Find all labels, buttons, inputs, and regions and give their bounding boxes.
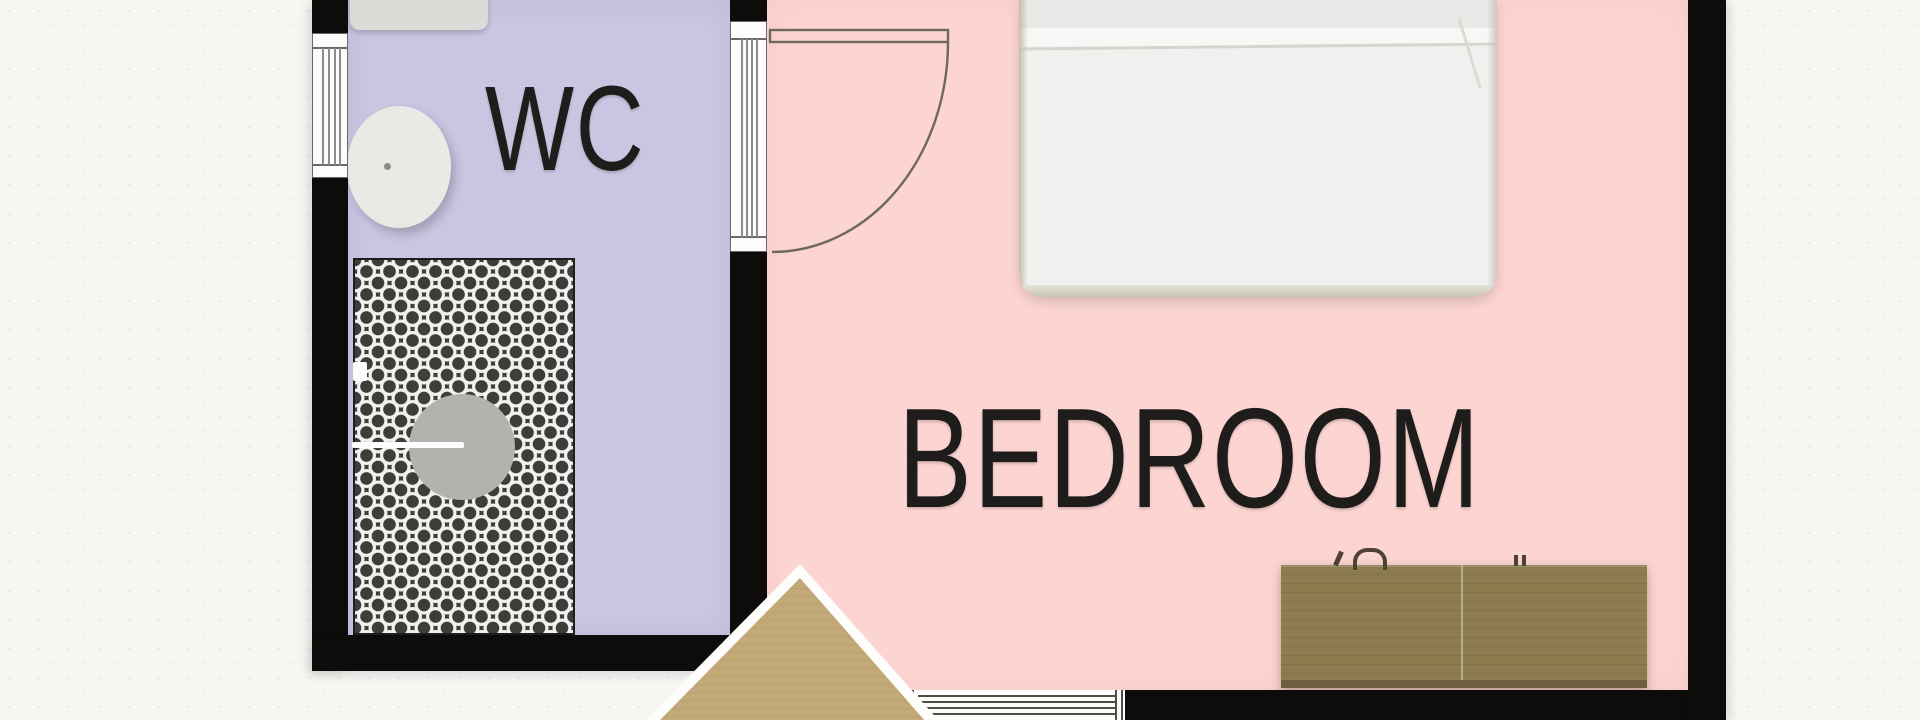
floor-plan-canvas: WC BEDROOM [0, 0, 1920, 720]
window-glazing-line [339, 48, 341, 165]
window-jamb [313, 47, 347, 49]
window-glazing-line [918, 701, 1116, 703]
window-glazing-line [918, 713, 1116, 715]
window-jamb [1121, 690, 1123, 720]
window-jamb [313, 164, 347, 166]
window-jamb [731, 236, 766, 238]
bed [1019, 0, 1497, 297]
dresser-handle [1514, 555, 1518, 566]
sink-drain-dot [384, 163, 391, 170]
stair-corner [640, 556, 944, 720]
shower-arm-line [352, 442, 464, 448]
window-glazing-line [918, 695, 1116, 697]
window-wc-bedroom [730, 21, 767, 252]
room-label-wc: WC [485, 68, 645, 189]
wall-bedroom-bottom [1125, 690, 1726, 720]
sink-basin [347, 106, 451, 228]
dresser [1281, 565, 1647, 688]
window-glazing-line [334, 48, 336, 165]
window-glazing-line [328, 48, 330, 165]
bed-duvet-edge [1019, 0, 1497, 28]
room-label-bedroom: BEDROOM [898, 388, 1481, 530]
window-glazing-line [751, 39, 753, 237]
shower-head [353, 362, 367, 381]
dresser-decor-ring [1353, 548, 1387, 570]
bed-right-shadow [1487, 0, 1497, 297]
bed-foot-shadow [1019, 285, 1497, 297]
window-glazing-line [756, 39, 758, 237]
window-wc-left [312, 33, 348, 178]
dresser-handle [1522, 555, 1526, 566]
window-glazing-line [741, 39, 743, 237]
wall-right-exterior [1688, 0, 1726, 720]
window-glazing-line [746, 39, 748, 237]
dresser-base [1281, 680, 1647, 688]
bed-left-shadow [1019, 0, 1028, 297]
window-glazing-line [322, 48, 324, 165]
dresser-seam [1461, 565, 1463, 688]
window-jamb [731, 38, 766, 40]
window-glazing-line [918, 707, 1116, 709]
toilet-cistern [350, 0, 488, 30]
window-jamb [1115, 690, 1117, 720]
